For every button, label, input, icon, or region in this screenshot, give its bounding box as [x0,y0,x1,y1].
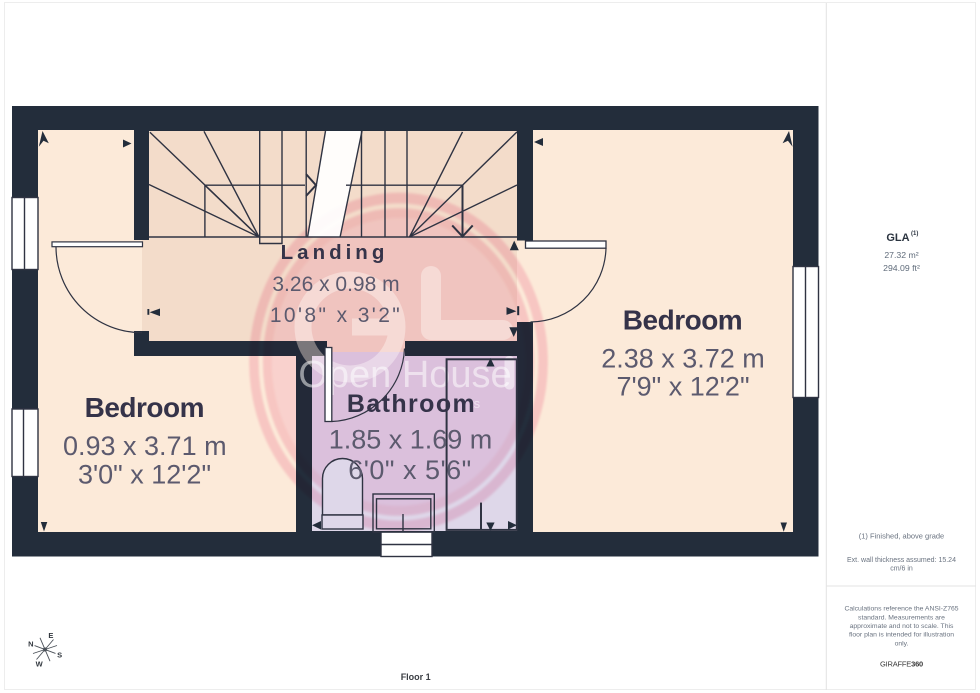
svg-text:2.38 x 3.72 m: 2.38 x 3.72 m [601,343,765,373]
svg-text:only.: only. [895,640,909,647]
svg-text:0.93 x 3.71 m: 0.93 x 3.71 m [63,431,227,461]
svg-text:1.85 x 1.69 m: 1.85 x 1.69 m [329,425,493,455]
svg-text:7'9" x 12'2": 7'9" x 12'2" [616,372,749,402]
svg-text:approximate and not to scale.: approximate and not to scale. This [850,623,954,630]
svg-text:Bedroom: Bedroom [85,392,204,423]
svg-text:3.26 x 0.98 m: 3.26 x 0.98 m [272,273,399,296]
svg-text:GIRAFFE360: GIRAFFE360 [880,660,923,669]
svg-text:10'8" x 3'2": 10'8" x 3'2" [270,304,402,327]
svg-text:Bathroom: Bathroom [347,390,476,418]
svg-text:Floor 1: Floor 1 [401,672,431,682]
svg-text:cm/6 in: cm/6 in [890,566,913,573]
svg-text:GLA: GLA [886,232,909,244]
svg-text:Ext. wall thickness assumed: 1: Ext. wall thickness assumed: 15.24 [847,557,956,564]
svg-text:(1): (1) [911,231,918,237]
svg-text:W: W [36,659,44,668]
svg-text:27.32 m²: 27.32 m² [884,250,918,260]
svg-text:3'0" x 12'2": 3'0" x 12'2" [78,459,211,489]
svg-text:Bedroom: Bedroom [623,304,742,335]
svg-text:standard. Measurements are: standard. Measurements are [858,614,945,621]
svg-text:Landing: Landing [281,241,389,264]
svg-text:N: N [28,639,33,648]
svg-text:(1) Finished, above grade: (1) Finished, above grade [859,532,944,541]
svg-text:6'0" x 5'6": 6'0" x 5'6" [348,455,472,485]
svg-text:Calculations reference the ANS: Calculations reference the ANSI-Z765 [844,606,958,613]
svg-text:S: S [57,651,62,660]
svg-text:floor plan is intended for ill: floor plan is intended for illustration [849,632,954,639]
svg-text:E: E [48,631,53,640]
svg-text:294.09 ft²: 294.09 ft² [883,263,920,273]
